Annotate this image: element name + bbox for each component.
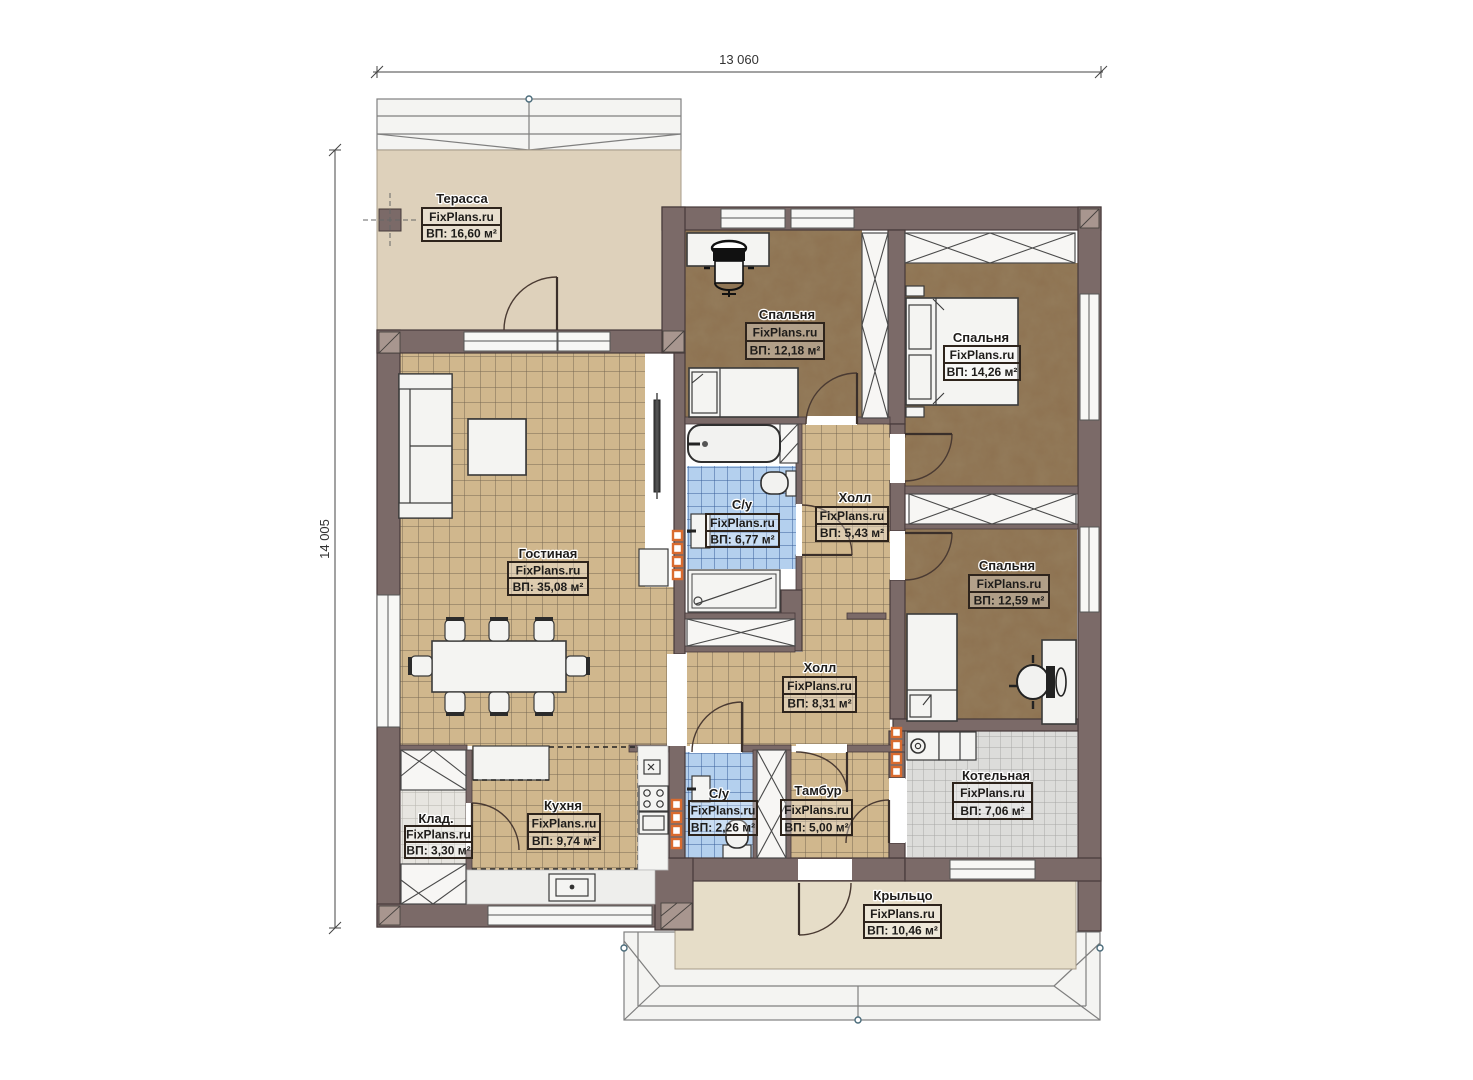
svg-text:С/у: С/у [732, 497, 753, 512]
svg-text:14 005: 14 005 [317, 519, 332, 559]
svg-text:13 060: 13 060 [719, 52, 759, 67]
svg-text:FixPlans.ru: FixPlans.ru [691, 804, 756, 818]
svg-text:Холл: Холл [839, 490, 872, 505]
svg-text:Спальня: Спальня [979, 558, 1035, 573]
svg-text:FixPlans.ru: FixPlans.ru [820, 509, 885, 523]
svg-text:Гостиная: Гостиная [519, 546, 578, 561]
svg-text:Кухня: Кухня [544, 798, 582, 813]
svg-text:ВП: 2,26 м²: ВП: 2,26 м² [691, 821, 755, 835]
svg-text:FixPlans.ru: FixPlans.ru [516, 564, 581, 578]
svg-text:FixPlans.ru: FixPlans.ru [532, 817, 597, 831]
svg-text:ВП: 6,77 м²: ВП: 6,77 м² [710, 533, 774, 547]
svg-text:ВП: 5,43 м²: ВП: 5,43 м² [820, 526, 884, 540]
svg-text:FixPlans.ru: FixPlans.ru [710, 516, 775, 530]
svg-text:Тамбур: Тамбур [794, 783, 841, 798]
svg-text:ВП: 10,46 м²: ВП: 10,46 м² [867, 924, 938, 938]
svg-text:Крыльцо: Крыльцо [873, 888, 932, 903]
svg-text:ВП: 16,60 м²: ВП: 16,60 м² [426, 227, 497, 241]
svg-text:ВП: 3,30 м²: ВП: 3,30 м² [406, 844, 470, 858]
svg-text:ВП: 5,00 м²: ВП: 5,00 м² [784, 821, 848, 835]
svg-text:ВП: 12,18 м²: ВП: 12,18 м² [750, 344, 821, 358]
svg-text:FixPlans.ru: FixPlans.ru [753, 326, 818, 340]
svg-text:ВП: 7,06 м²: ВП: 7,06 м² [960, 804, 1024, 818]
svg-text:FixPlans.ru: FixPlans.ru [977, 577, 1042, 591]
svg-text:Терасса: Терасса [436, 191, 488, 206]
svg-text:ВП: 8,31 м²: ВП: 8,31 м² [787, 697, 851, 711]
svg-text:ВП: 12,59 м²: ВП: 12,59 м² [974, 594, 1045, 608]
svg-text:FixPlans.ru: FixPlans.ru [429, 210, 494, 224]
svg-text:ВП: 9,74 м²: ВП: 9,74 м² [532, 834, 596, 848]
svg-text:Спальня: Спальня [759, 307, 815, 322]
svg-text:ВП: 35,08 м²: ВП: 35,08 м² [513, 580, 584, 594]
svg-text:ВП: 14,26 м²: ВП: 14,26 м² [947, 365, 1018, 379]
svg-text:С/у: С/у [709, 786, 730, 801]
svg-text:FixPlans.ru: FixPlans.ru [787, 679, 852, 693]
svg-text:FixPlans.ru: FixPlans.ru [784, 803, 849, 817]
svg-text:Котельная: Котельная [962, 768, 1030, 783]
svg-text:Клад.: Клад. [418, 811, 453, 826]
svg-text:Спальня: Спальня [953, 330, 1009, 345]
svg-text:FixPlans.ru: FixPlans.ru [406, 828, 471, 842]
svg-text:FixPlans.ru: FixPlans.ru [950, 348, 1015, 362]
svg-text:Холл: Холл [804, 660, 837, 675]
svg-text:FixPlans.ru: FixPlans.ru [960, 786, 1025, 800]
svg-text:FixPlans.ru: FixPlans.ru [870, 907, 935, 921]
